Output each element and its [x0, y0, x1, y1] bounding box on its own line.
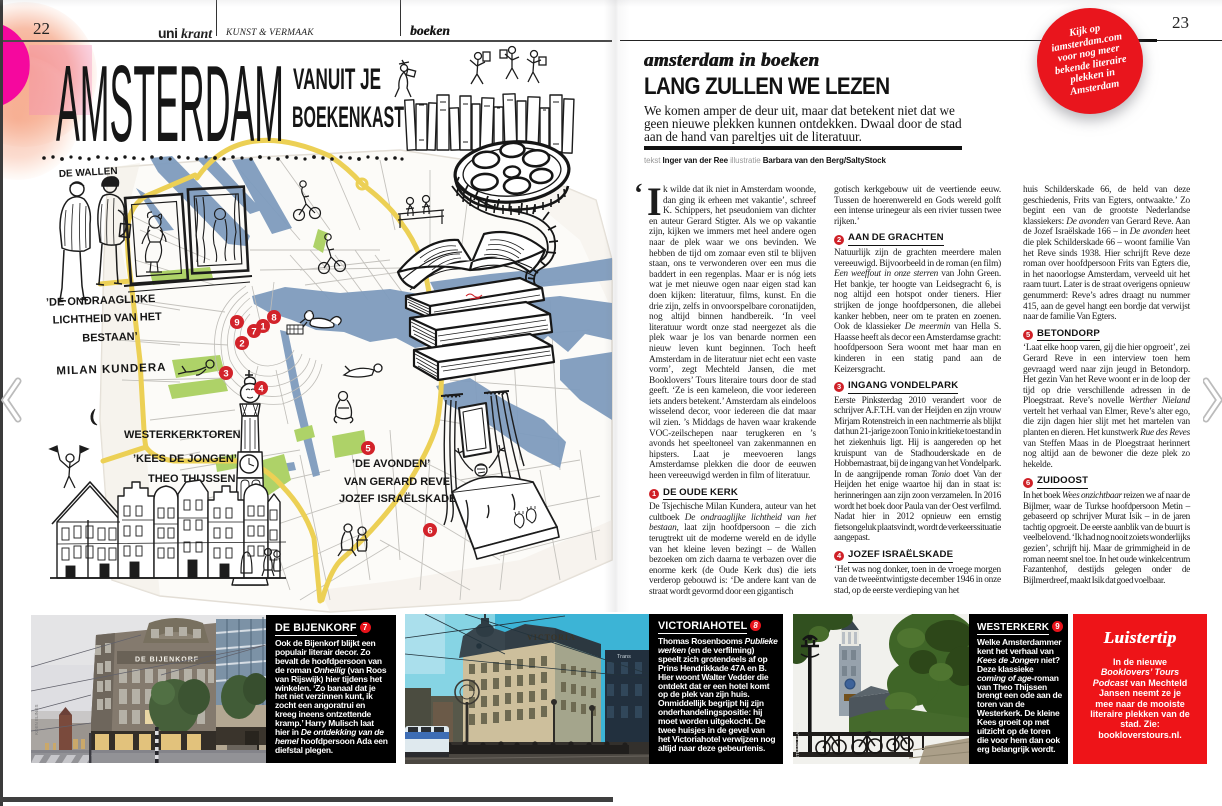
- svg-text:STEFAN BLAZEN: STEFAN BLAZEN: [795, 723, 800, 759]
- svg-text:VAN GERARD REVE: VAN GERARD REVE: [344, 476, 450, 488]
- svg-text:KOEN ELINGS: KOEN ELINGS: [34, 704, 39, 735]
- svg-text:6: 6: [427, 526, 432, 537]
- svg-text:BESTAAN’: BESTAAN’: [82, 331, 138, 345]
- svg-text:2: 2: [239, 339, 244, 350]
- svg-text:Trans: Trans: [617, 654, 631, 660]
- svg-text:’KEES DE JONGEN’: ’KEES DE JONGEN’: [133, 453, 237, 465]
- svg-text:’DE AVONDEN’: ’DE AVONDEN’: [352, 458, 430, 470]
- svg-text:VICTORIA: VICTORIA: [527, 633, 576, 642]
- svg-text:1: 1: [260, 322, 266, 333]
- svg-text:WESTERKERKTOREN: WESTERKERKTOREN: [124, 429, 241, 441]
- svg-text:8: 8: [271, 313, 276, 324]
- svg-text:MILAN KUNDERA: MILAN KUNDERA: [56, 362, 166, 378]
- svg-text:7: 7: [251, 327, 256, 338]
- svg-text:5: 5: [365, 444, 371, 455]
- svg-text:’DE ONDRAAGLIJKE: ’DE ONDRAAGLIJKE: [46, 293, 156, 309]
- svg-text:3: 3: [223, 369, 228, 380]
- svg-text:9: 9: [234, 318, 239, 329]
- svg-text:LICHTHEID VAN HET: LICHTHEID VAN HET: [52, 311, 162, 327]
- svg-text:JOZEF ISRAËLSKADE: JOZEF ISRAËLSKADE: [339, 492, 456, 505]
- svg-text:4: 4: [258, 384, 264, 395]
